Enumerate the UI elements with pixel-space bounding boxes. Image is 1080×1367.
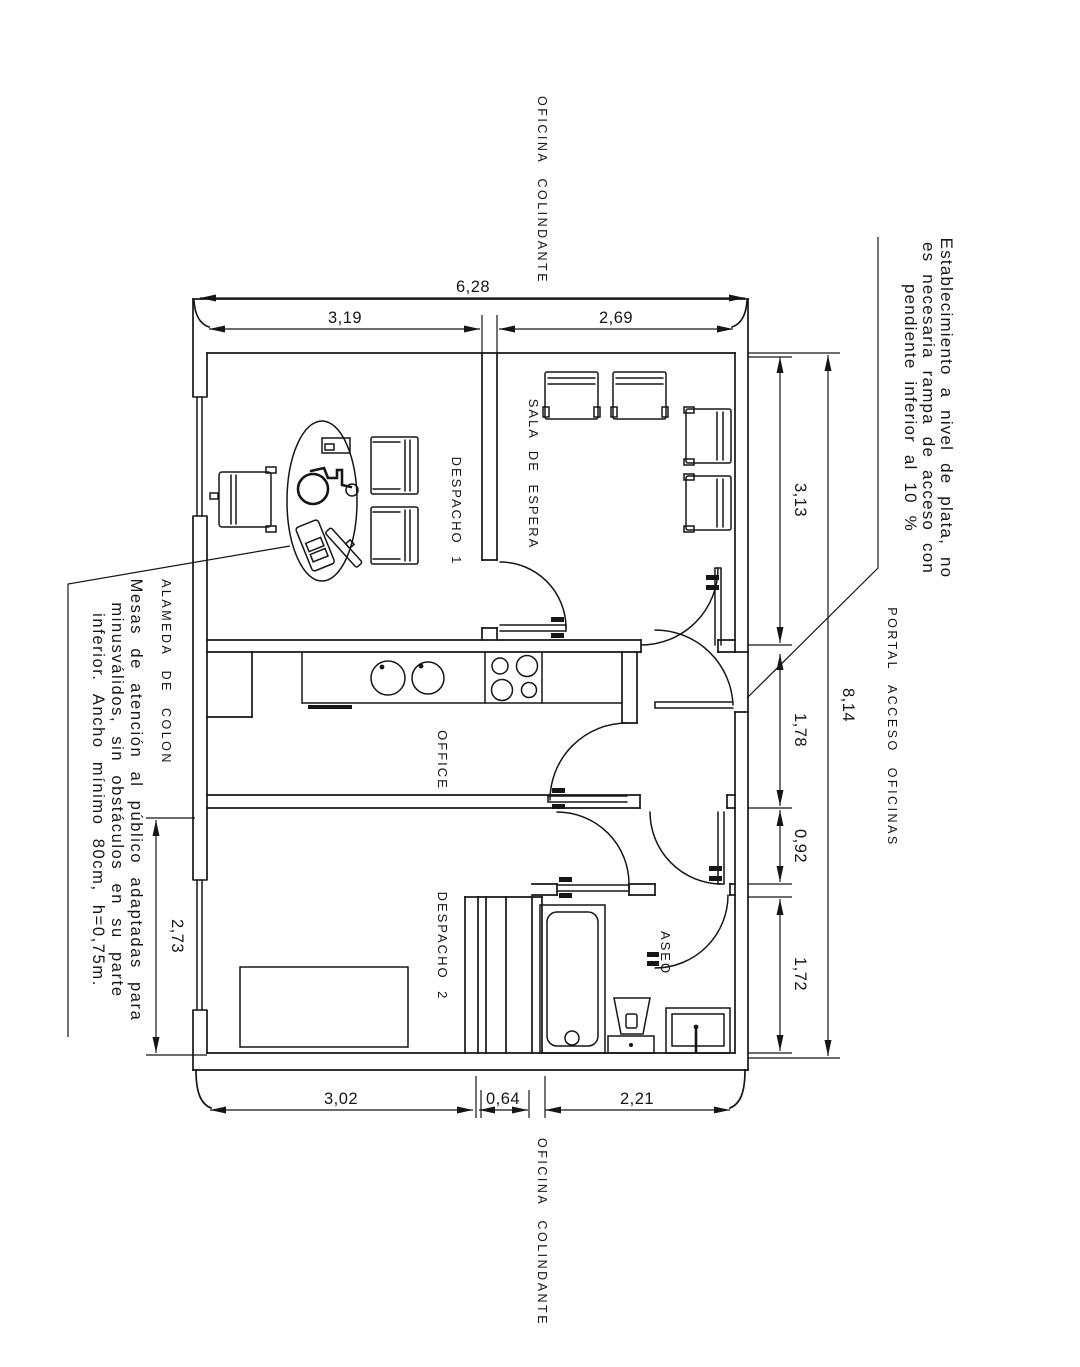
kitchen-counter [302, 652, 622, 709]
dim-hall-height: 1,78 [791, 713, 809, 747]
dim-vestibule-height: 0,92 [791, 829, 809, 863]
note-access-line2: es necesaria rampa de acceso con [919, 242, 938, 574]
door-hall-vestibule [650, 812, 724, 884]
label-oficina-colindante-bottom: OFICINA COLINDANTE [535, 1138, 549, 1326]
dim-closet-width: 0,64 [486, 1090, 520, 1108]
label-oficina-colindante-top: OFICINA COLINDANTE [535, 96, 549, 284]
dim-despacho2-width: 3,02 [324, 1090, 358, 1108]
guest-chair-1 [371, 437, 418, 494]
desk-oval-adapted [287, 421, 367, 581]
waiting-chair-right-1 [684, 407, 731, 465]
note-access: Establecimiento a nivel de plata, no es … [901, 238, 956, 579]
floor-plan-canvas: OFICINA COLINDANTE OFICINA COLINDANTE AL… [0, 0, 1080, 1367]
dim-total-height: 8,14 [839, 688, 857, 722]
dim-total-width: 6,28 [456, 278, 490, 296]
door-office [548, 723, 627, 809]
bathtub [540, 905, 605, 1053]
room-label-despacho2: DESPACHO 2 [435, 892, 450, 1001]
door-despacho1 [500, 562, 566, 638]
dim-aseo-width: 2,21 [620, 1090, 654, 1108]
waiting-chair-top-2 [611, 372, 668, 419]
room-label-despacho1: DESPACHO 1 [449, 457, 464, 566]
room-label-office: OFFICE [435, 730, 450, 790]
label-portal-acceso-oficinas: PORTAL ACCESO OFICINAS [885, 607, 899, 846]
dimension-lines [146, 298, 840, 1118]
label-alameda-de-colon: ALAMEDA DE COLON [159, 579, 173, 765]
stove-four-burners [485, 652, 542, 703]
sink-double [371, 661, 444, 695]
counter-mark [308, 705, 352, 709]
guest-chair-2 [371, 507, 418, 564]
toilet [608, 998, 654, 1053]
desk-despacho2 [240, 967, 408, 1047]
dim-sala-height: 3,13 [791, 483, 809, 517]
note-access-line3: pendiente inferior al 10 % [901, 284, 920, 532]
room-label-aseo: ASEO [658, 931, 673, 975]
dim-despacho1-width: 3,19 [328, 309, 362, 327]
waiting-chair-top-1 [543, 372, 600, 419]
note-desk-line1: Mesas de atención al público adaptadas p… [127, 579, 145, 1022]
wheelchair-icon [298, 468, 358, 504]
leader-access-note [747, 237, 878, 698]
waiting-chair-right-2 [684, 474, 731, 532]
note-desk-line3: inferior. Ancho mínimo 80cm, h=0,75m. [89, 613, 107, 987]
phone-on-desk [295, 519, 335, 572]
dim-despacho2-height: 2,73 [168, 919, 186, 953]
note-desk-line2: minusválidos, sin obstáculos en su parte [108, 602, 126, 997]
room-label-sala-de-espera: SALA DE ESPERA [526, 399, 541, 550]
note-desk: Mesas de atención al público adaptadas p… [89, 579, 145, 1022]
note-access-line1: Establecimiento a nivel de plata, no [937, 238, 956, 579]
dim-aseo-height: 1,72 [791, 957, 809, 991]
door-despacho2 [557, 812, 629, 898]
keyboard-on-desk [322, 438, 350, 453]
washbasin [666, 1008, 730, 1053]
office-chair-despacho1 [210, 467, 276, 532]
dim-sala-width: 2,69 [599, 309, 633, 327]
